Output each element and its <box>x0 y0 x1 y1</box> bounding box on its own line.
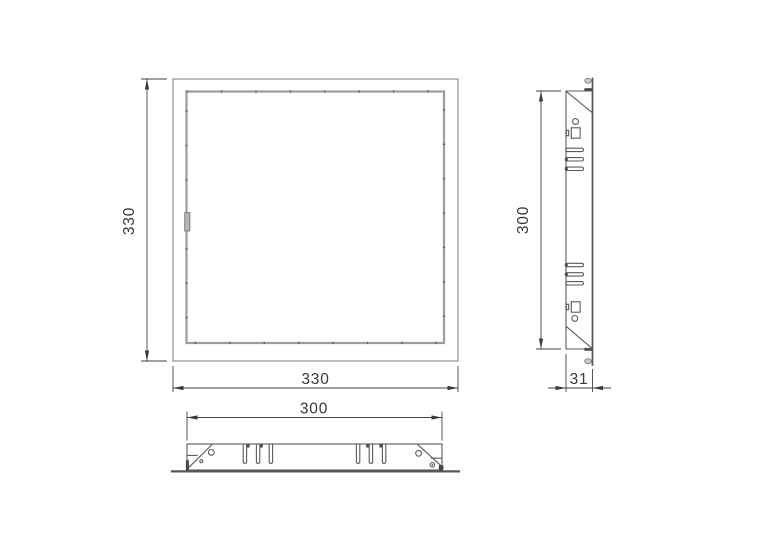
gasket-section <box>439 465 443 470</box>
corner-brace <box>567 327 593 349</box>
gasket-section <box>186 460 189 470</box>
dimension-label: 31 <box>570 371 589 388</box>
technical-drawing-canvas: 330 330 <box>0 0 771 545</box>
vent-slot <box>566 282 584 285</box>
bottom-width-dimension: 300 <box>187 401 442 441</box>
dimension-label: 330 <box>301 371 329 388</box>
arrowhead-icon <box>145 79 149 90</box>
dimension-label: 330 <box>121 207 138 235</box>
arrowhead-icon <box>539 91 543 102</box>
vent-slot <box>269 444 272 463</box>
body-outline <box>566 91 593 349</box>
vent-slot <box>566 263 584 266</box>
body-outline <box>187 444 442 470</box>
front-height-dimension: 330 <box>121 79 167 361</box>
mounting-hole <box>572 316 578 322</box>
arrowhead-icon <box>593 386 604 390</box>
door-handle <box>185 213 190 232</box>
front-view <box>173 79 458 361</box>
vent-slot <box>356 444 359 463</box>
drawing-sheet: 330 330 <box>0 0 771 545</box>
latch-tab <box>566 130 568 135</box>
slot-notch <box>379 444 382 447</box>
side-depth-dimension: 31 <box>548 354 611 392</box>
slot-notch <box>247 444 250 447</box>
arrowhead-icon <box>145 351 149 362</box>
rivet-hole <box>200 460 203 463</box>
latch-bracket <box>571 302 580 312</box>
hinge-pin-bottom <box>585 359 592 364</box>
latch-bracket <box>571 128 580 138</box>
vent-slot <box>369 444 372 463</box>
slot-notch <box>260 444 263 447</box>
vent-slot <box>256 444 259 463</box>
vent-slot <box>566 167 584 170</box>
slot-notch <box>565 273 568 276</box>
vent-slot <box>243 444 246 463</box>
arrowhead-icon <box>432 415 443 419</box>
arrowhead-icon <box>448 386 459 390</box>
vent-slot <box>566 148 584 151</box>
front-width-dimension: 330 <box>173 366 458 392</box>
bottom-view <box>172 444 459 471</box>
slot-notch <box>565 264 568 267</box>
latch-tab <box>566 304 568 309</box>
mounting-hole <box>416 450 422 456</box>
cam-lock-pin <box>432 464 434 466</box>
arrowhead-icon <box>187 415 198 419</box>
arrowhead-icon <box>539 339 543 350</box>
slot-notch <box>366 444 369 447</box>
mounting-hole <box>573 119 579 125</box>
vent-slot <box>566 273 584 276</box>
extension-lines <box>141 79 167 361</box>
side-height-dimension: 300 <box>515 91 561 349</box>
mounting-hole <box>208 450 214 456</box>
vent-slot <box>566 158 584 161</box>
arrowhead-icon <box>173 386 184 390</box>
outer-frame-outline <box>173 79 458 361</box>
corner-brace <box>567 92 592 113</box>
arrowhead-icon <box>556 386 567 390</box>
slot-notch <box>565 158 568 161</box>
side-view <box>565 78 593 365</box>
vent-slot <box>382 444 385 463</box>
slot-notch <box>565 167 568 170</box>
dimension-label: 300 <box>515 206 532 234</box>
dimension-label: 300 <box>300 401 328 418</box>
extension-lines <box>536 91 561 349</box>
corner-brace <box>189 445 212 468</box>
hinge-pin-top <box>585 78 592 83</box>
